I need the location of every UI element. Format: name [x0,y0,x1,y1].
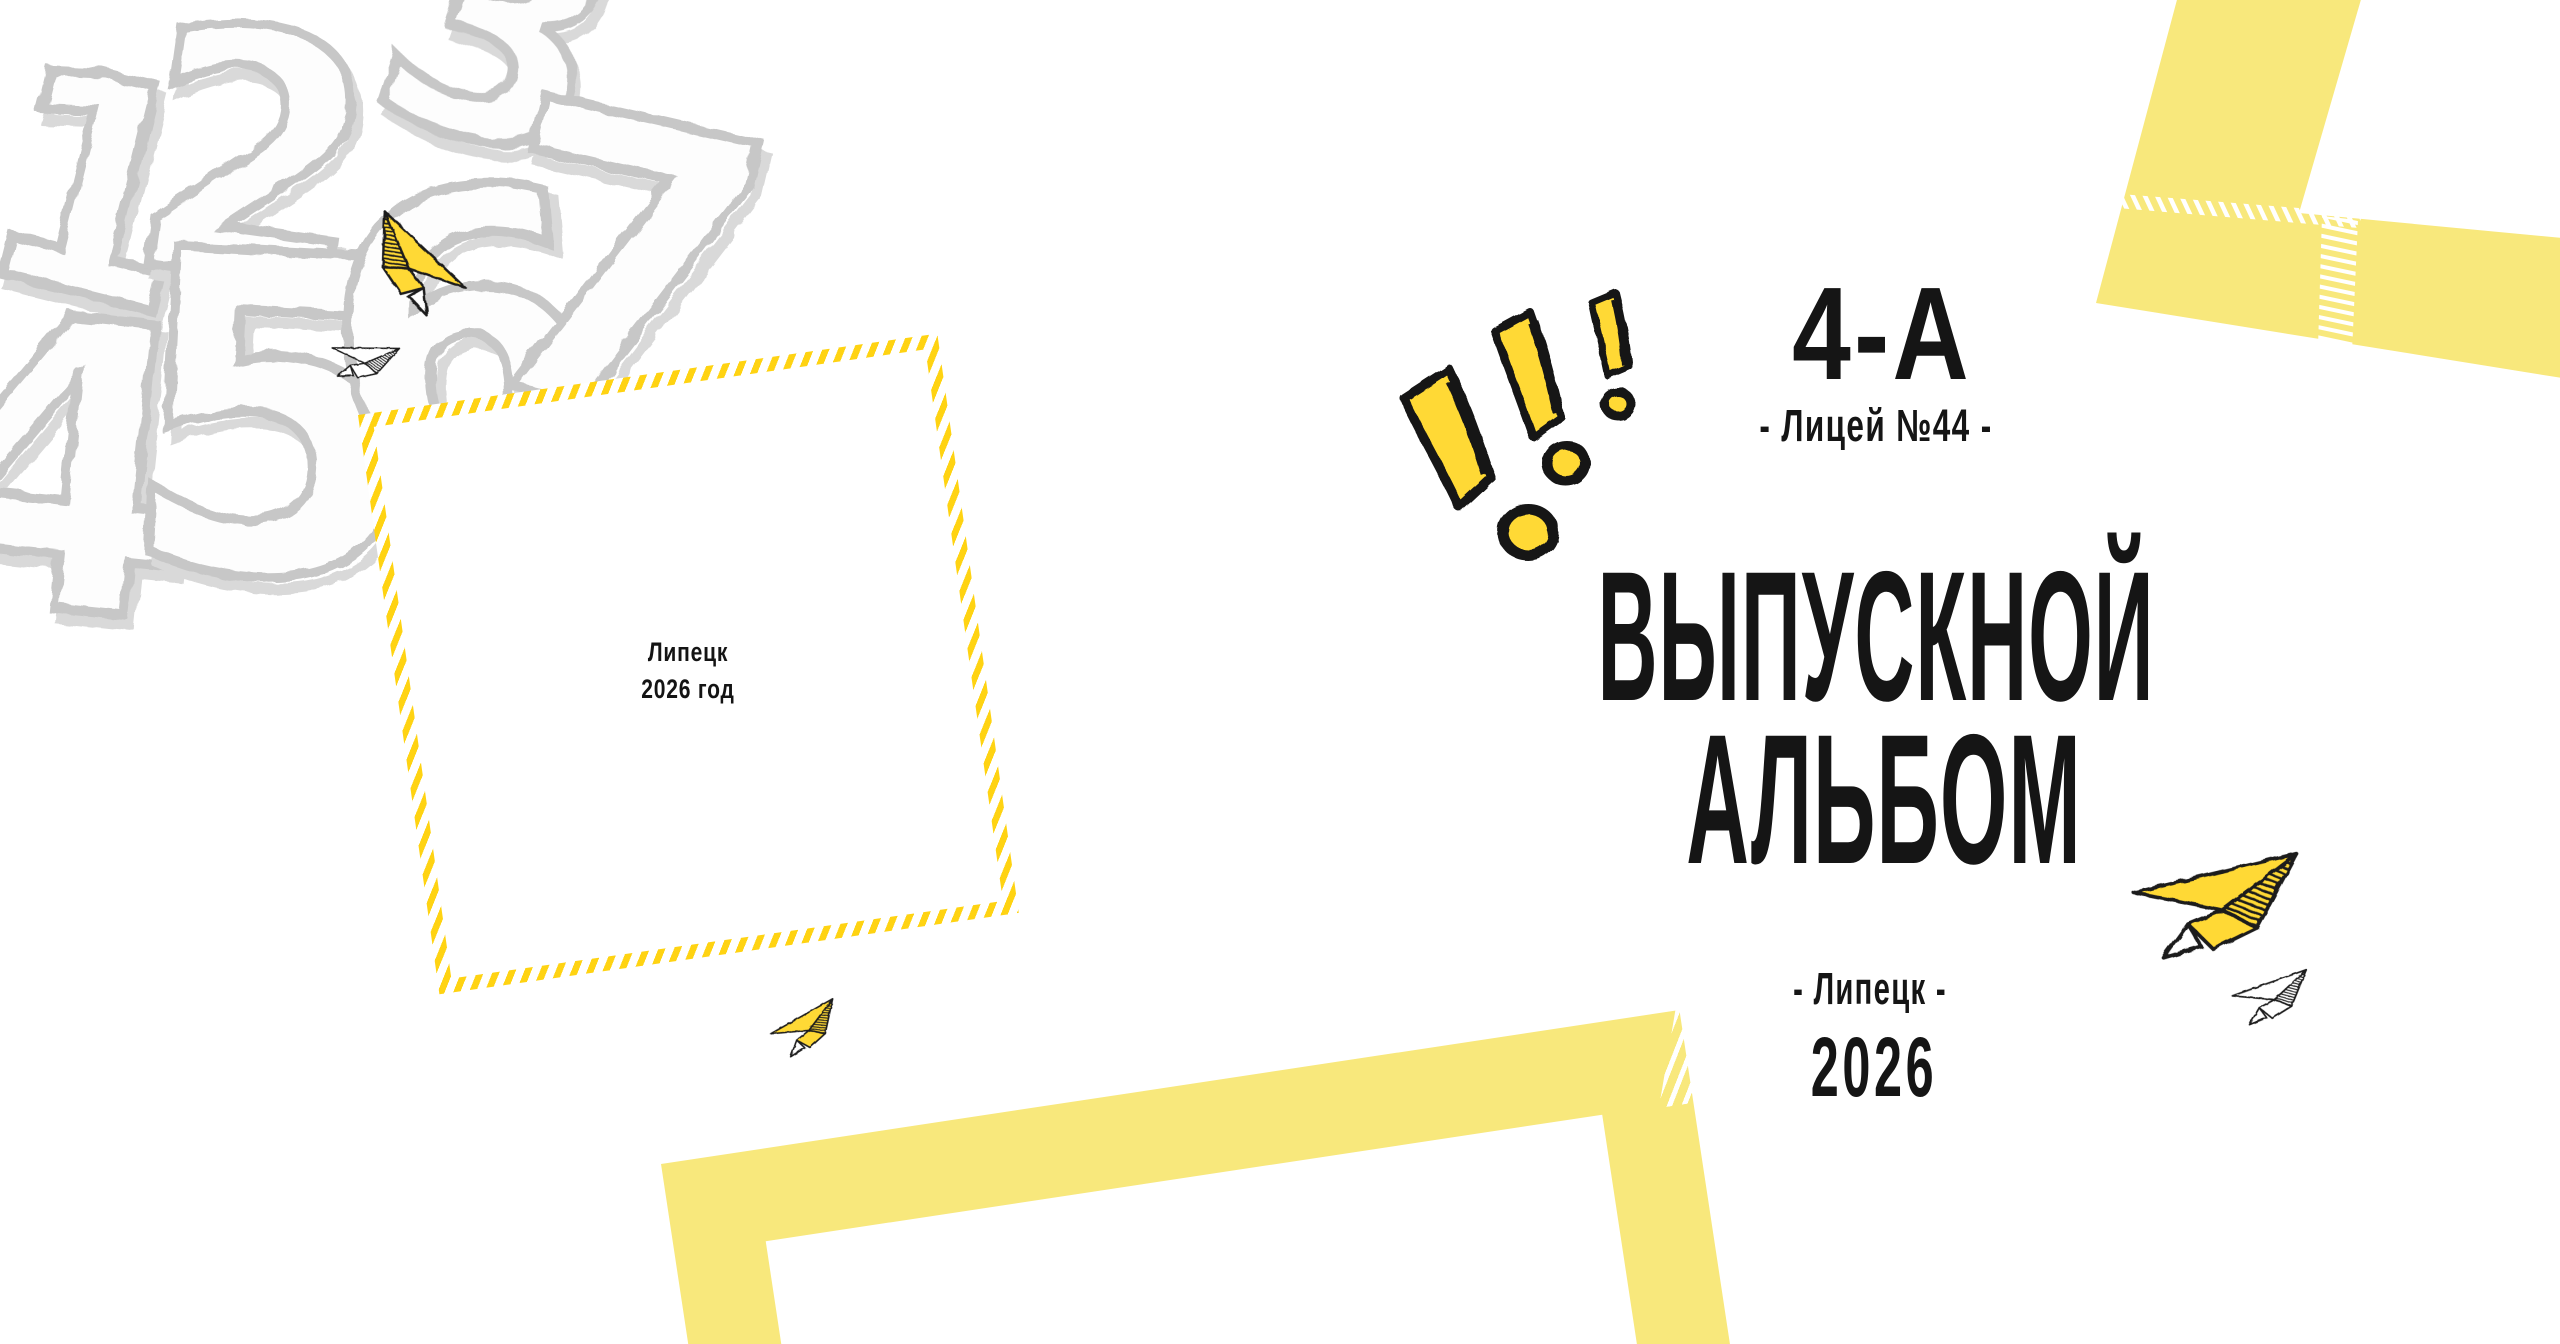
year-label: 2026 [1811,1019,1938,1116]
city-name: - Липецк - [1793,963,1947,1015]
photo-frame-caption-line1: Липецк [641,634,734,671]
album-cover-canvas: 1 1 2 2 3 3 4 4 5 5 6 6 [0,0,2560,1344]
album-title-line2: АЛЬБОМ [1686,694,2082,906]
paper-plane-white-icon [2226,959,2321,1032]
frame-corner-top-right [2050,0,2560,400]
frame-seam-icon [1645,995,1788,1108]
paper-plane-yellow-icon [2124,832,2316,971]
photo-frame-caption: Липецк 2026 год [641,634,734,709]
paper-plane-yellow-icon [761,988,853,1065]
frame-seam-icon [2318,216,2358,352]
frame-bottom [661,1010,1833,1344]
photo-frame-caption-line2: 2026 год [641,671,734,708]
class-name: 4-А [1792,258,1972,409]
school-name: - Лицей №44 - [1759,400,1992,452]
